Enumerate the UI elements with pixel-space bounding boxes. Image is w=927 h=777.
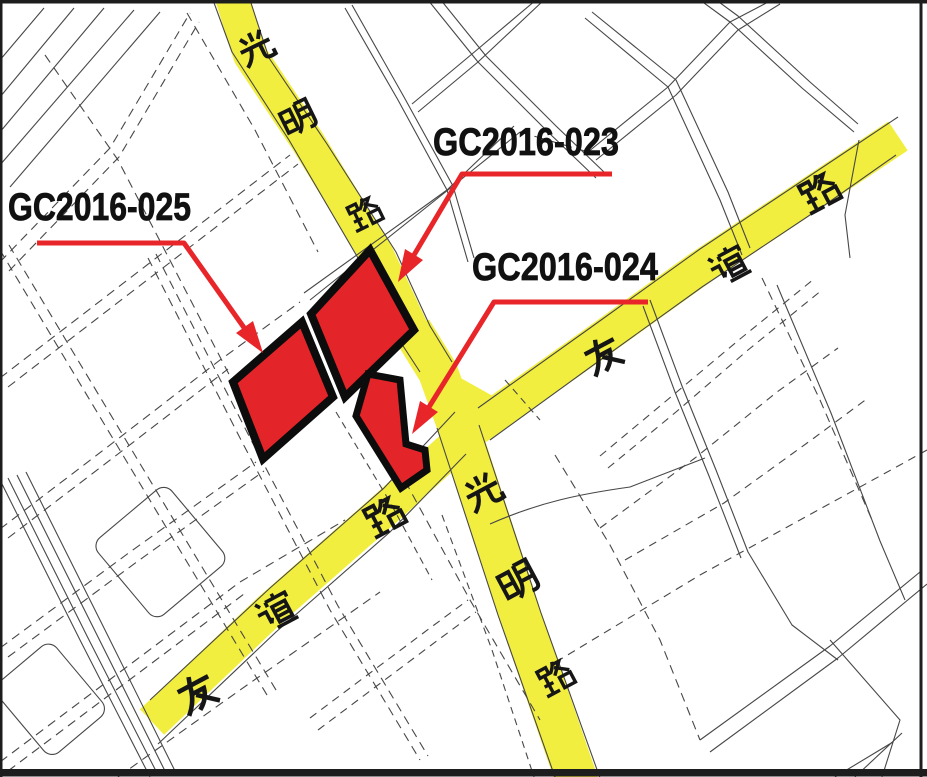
svg-text:GC2016-025: GC2016-025	[8, 186, 191, 229]
svg-text:GC2016-024: GC2016-024	[472, 246, 658, 289]
svg-text:GC2016-023: GC2016-023	[433, 121, 619, 164]
